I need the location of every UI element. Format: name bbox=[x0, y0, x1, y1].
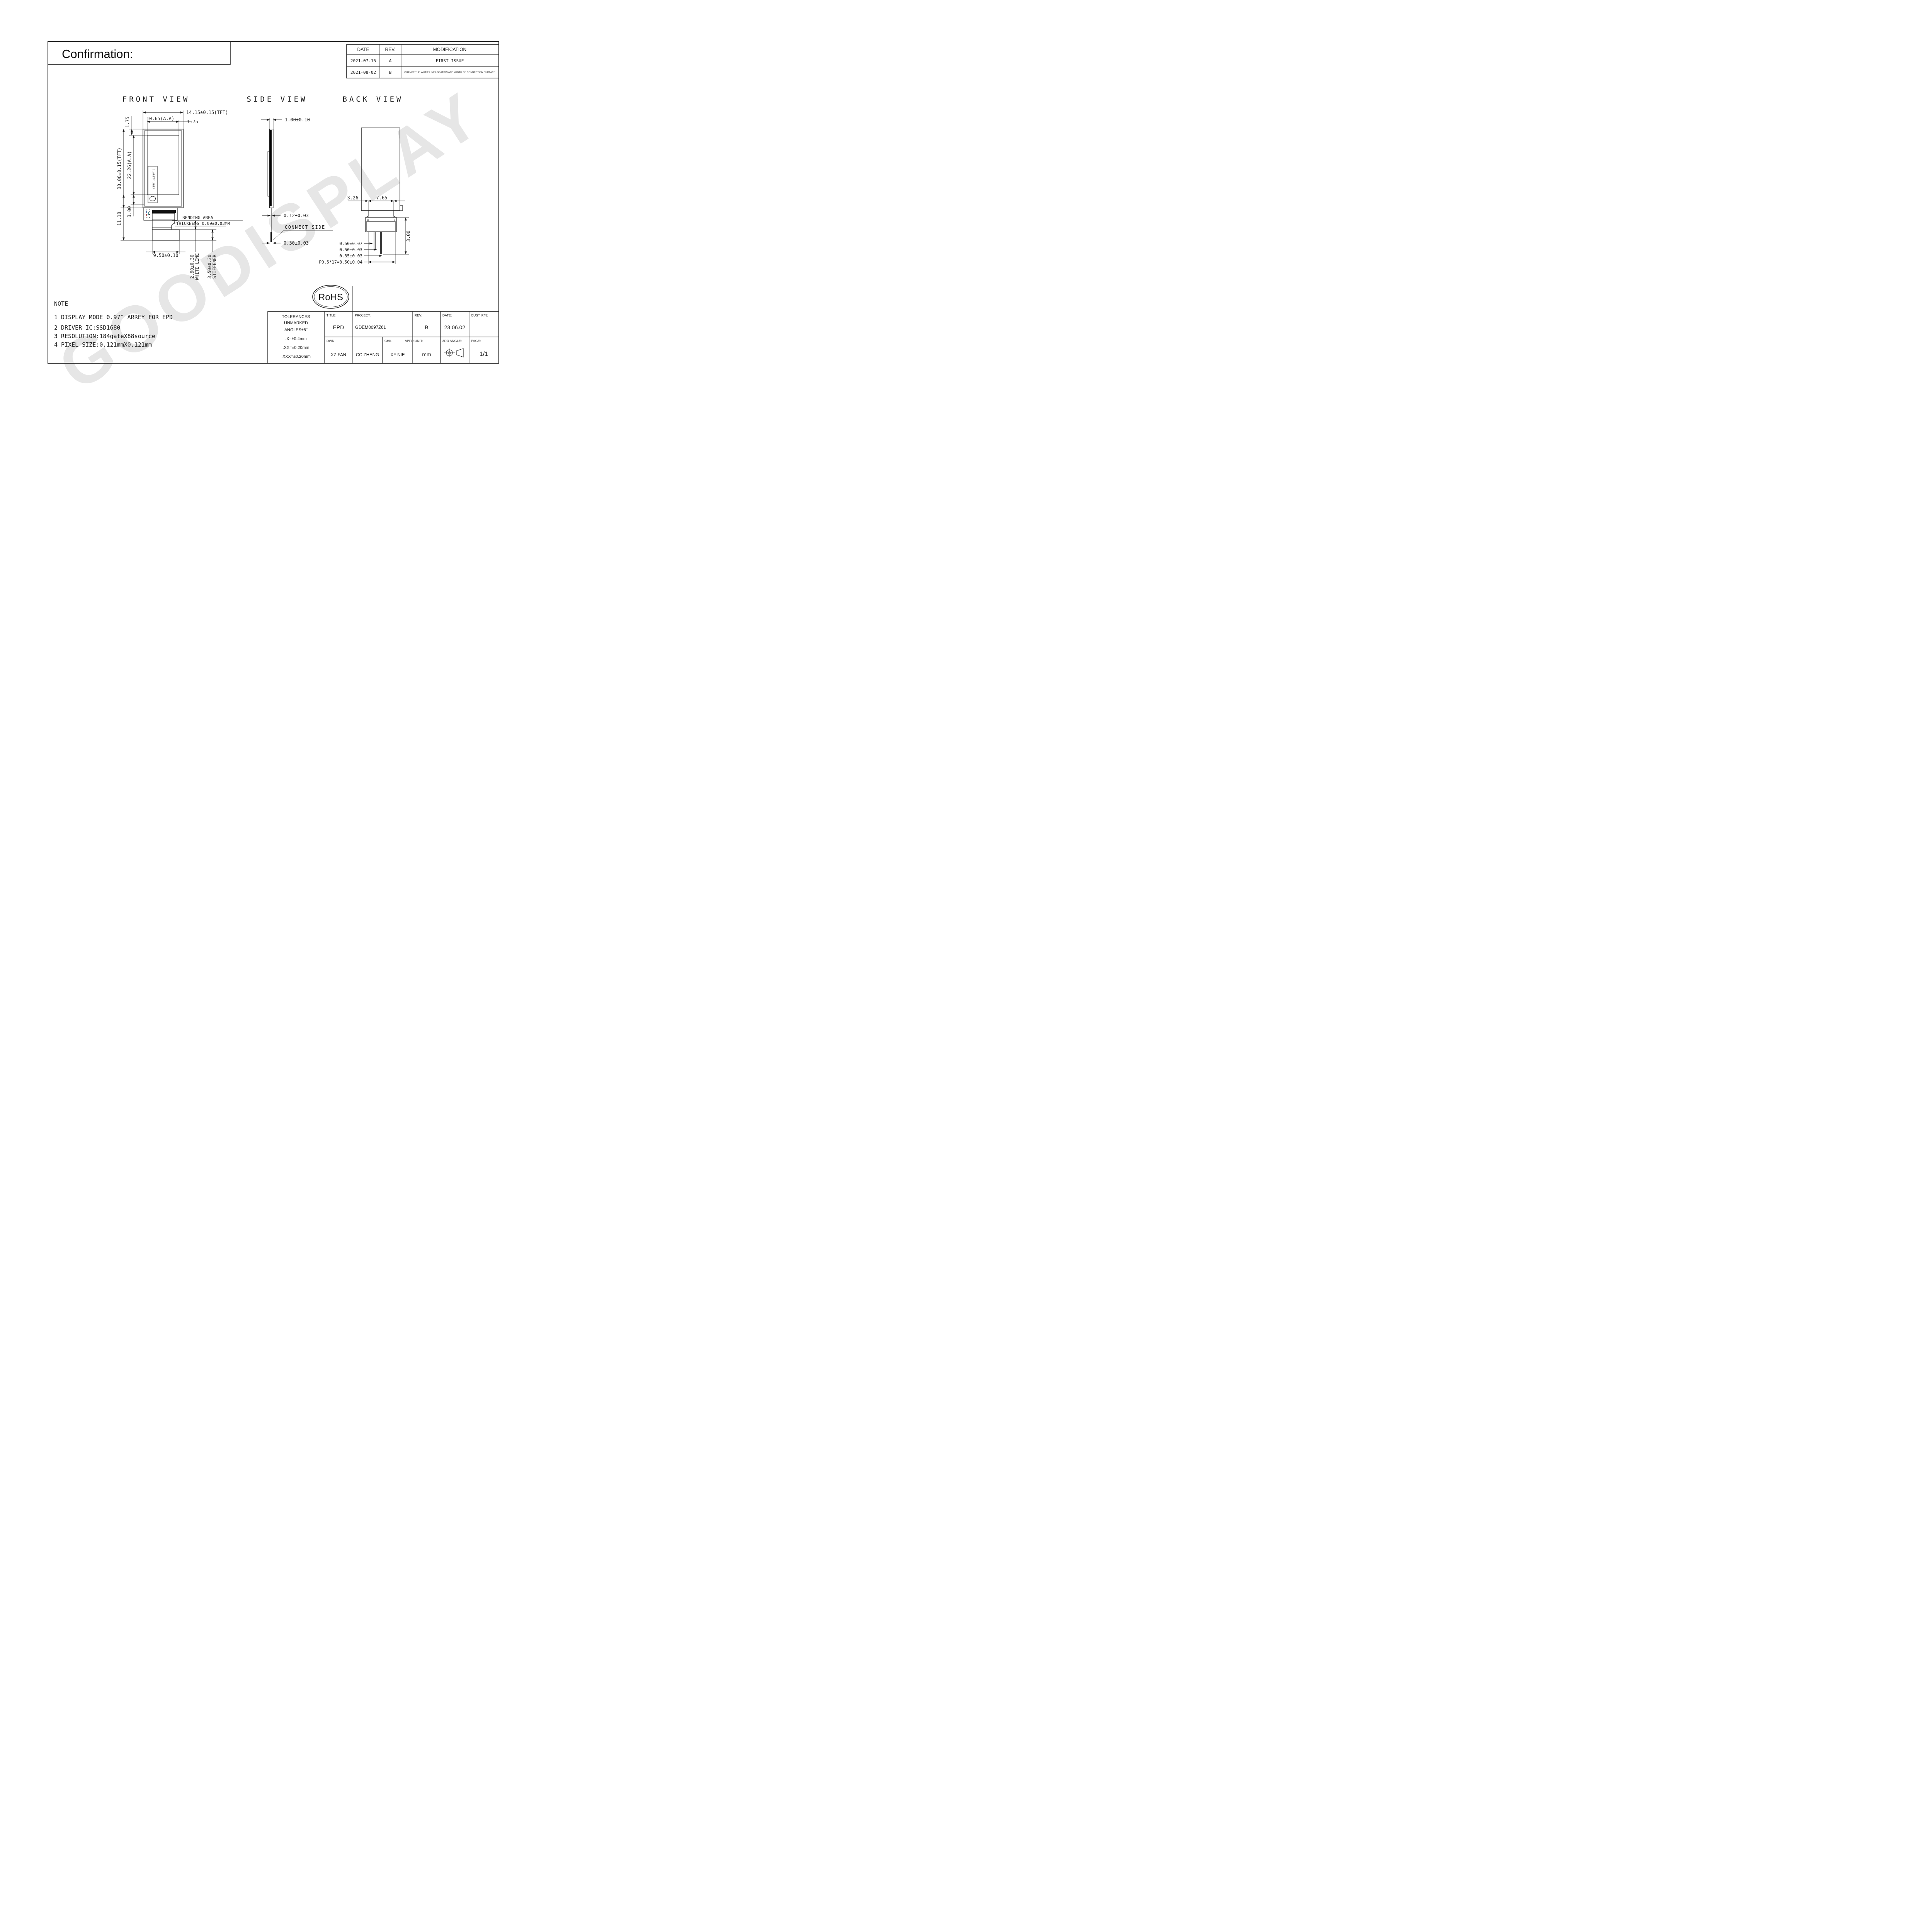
page-label: PAGE: bbox=[471, 339, 481, 343]
note-title: NOTE bbox=[54, 300, 68, 307]
revision-row: 2021-08-02 B CHANGE THE WHTIE LINE LOCAT… bbox=[350, 70, 495, 75]
dim-pin-d1: 0.50±0.07 bbox=[339, 241, 362, 246]
dwn-label: DWN. bbox=[327, 339, 335, 343]
confirmation-header: Confirmation: bbox=[48, 41, 230, 65]
dim-fpc-thickness: 0.12±0.03 bbox=[284, 213, 309, 218]
dim-back-width: 7.65 bbox=[376, 195, 388, 201]
rev-a-rev: A bbox=[389, 58, 392, 63]
revision-table: DATE REV. MODIFICATION 2021-07-15 A FIRS… bbox=[347, 44, 499, 78]
schematic-svg: GOODISPLAY Confirmation: DATE REV. MODIF… bbox=[0, 0, 542, 383]
project-value: GDEM0097Z61 bbox=[355, 325, 386, 330]
appr-value: XF NIE bbox=[390, 353, 405, 357]
title-label: TITLE: bbox=[327, 313, 337, 317]
thickness-label: THICKNESS 0.09±0.03MM bbox=[176, 221, 230, 226]
side-view-title: SIDE VIEW bbox=[247, 95, 308, 104]
drawing-sheet: GOODISPLAY Confirmation: DATE REV. MODIF… bbox=[0, 0, 542, 383]
chk-label: CHK. bbox=[384, 339, 392, 343]
tolerances-cell: TOLERANCES UNMARKED ANGLES±5° .X=±0.4mm … bbox=[281, 315, 311, 359]
dim-back-offset: 3.26 bbox=[347, 195, 359, 201]
date-label: DATE: bbox=[442, 313, 452, 317]
white-line-label: WHITE LINE bbox=[194, 253, 200, 280]
note-item-1: 1 DISPLAY MODE 0.97″ ARREY FOR EPD bbox=[54, 314, 173, 321]
dwn-value: XZ FAN bbox=[331, 353, 346, 357]
page-value: 1/1 bbox=[480, 351, 488, 357]
dim-pin-pitch: P0.5*17=8.50±0.04 bbox=[319, 260, 362, 265]
title-block: TOLERANCES UNMARKED ANGLES±5° .X=±0.4mm … bbox=[268, 311, 499, 363]
confirmation-title: Confirmation: bbox=[62, 47, 133, 61]
dim-pin-d3: 0.35±0.03 bbox=[339, 253, 362, 259]
pin-grid-area bbox=[152, 213, 175, 220]
rev-a-date: 2021-07-15 bbox=[350, 58, 376, 63]
dim-stiffener-width: 9.50±0.10 bbox=[153, 253, 178, 258]
stiffener-block bbox=[152, 230, 179, 240]
dim-width-aa: 10.65(A.A) bbox=[146, 116, 174, 121]
bending-area-label: BENDING AREA bbox=[182, 215, 213, 220]
dim-pin-d2: 0.50±0.03 bbox=[339, 247, 362, 252]
dim-connector-thickness: 0.30±0.03 bbox=[284, 240, 309, 246]
dim-white-line: 2.90±0.30 bbox=[189, 255, 195, 279]
third-angle-projection-icon bbox=[444, 349, 463, 357]
rev-b-date: 2021-08-02 bbox=[350, 70, 376, 75]
pin-number-first: 18 bbox=[367, 219, 369, 221]
clarity-area-label: CLARITY AREA bbox=[152, 169, 155, 189]
dim-stiffener: 3.50±0.30 bbox=[207, 255, 212, 279]
project-label: PROJECT: bbox=[355, 313, 371, 317]
dim-side-thickness: 1.00±0.10 bbox=[285, 117, 310, 122]
connect-side-label: CONNECT SIDE bbox=[285, 225, 325, 230]
tol-line-3: ANGLES±5° bbox=[284, 328, 308, 332]
appr-label: APPR. bbox=[405, 339, 415, 343]
note-item-4: 4 PIXEL SIZE:0.121mmX0.121mm bbox=[54, 341, 152, 348]
tol-line-4: .X=±0.4mm bbox=[285, 337, 306, 341]
rohs-logo: RoHS bbox=[313, 285, 353, 311]
connect-side-contact bbox=[270, 232, 272, 242]
revision-row: 2021-07-15 A FIRST ISSUE bbox=[350, 58, 464, 63]
dim-height-aa: 22.26(A.A) bbox=[127, 151, 132, 179]
rev-a-modification: FIRST ISSUE bbox=[436, 58, 464, 63]
dim-margin-right: 1.75 bbox=[187, 119, 198, 124]
rev-b-modification: CHANGE THE WHTIE LINE LOCATION AND WIDTH… bbox=[404, 71, 495, 74]
unit-value: mm bbox=[422, 351, 431, 357]
dim-height-tft: 30.00±0.15(TFT) bbox=[117, 148, 122, 189]
pin-number-last: 1 bbox=[394, 219, 395, 221]
rev-b-rev: B bbox=[389, 70, 392, 75]
dim-width-tft: 14.15±0.15(TFT) bbox=[186, 110, 228, 115]
rohs-label: RoHS bbox=[318, 292, 343, 303]
stiffener-label: STIFFENER bbox=[212, 255, 217, 279]
dim-tail-height: 11.18 bbox=[117, 212, 122, 226]
cust-pn-label: CUST. P/N: bbox=[471, 313, 488, 317]
date-value: 23.06.02 bbox=[444, 324, 466, 330]
tol-line-1: TOLERANCES bbox=[282, 315, 310, 319]
tol-line-5: .XX=±0.20mm bbox=[283, 345, 310, 350]
rev-col-date: DATE bbox=[357, 47, 369, 52]
rev-col-modification: MODIFICATION bbox=[433, 47, 466, 52]
acf-bar bbox=[152, 210, 176, 213]
dim-bend-height: 3.00 bbox=[127, 206, 132, 218]
chk-value: CC ZHENG bbox=[356, 353, 379, 357]
tol-line-2: UNMARKED bbox=[284, 321, 308, 325]
front-view-title: FRONT VIEW bbox=[122, 95, 190, 104]
rev-label: REV: bbox=[415, 313, 422, 317]
note-item-3: 3 RESOLUTION:184gateX88source bbox=[54, 333, 155, 340]
note-item-2: 2 DRIVER IC:SSD1680 bbox=[54, 324, 121, 331]
dim-margin-top: 1.75 bbox=[125, 117, 130, 128]
connector-pins-comb bbox=[367, 221, 395, 231]
back-view-title: BACK VIEW bbox=[343, 95, 403, 104]
tol-line-6: .XXX=±0.20mm bbox=[281, 354, 311, 359]
rev-col-rev: REV. bbox=[385, 47, 396, 52]
dim-connector-height: 3.00 bbox=[406, 231, 411, 242]
title-value: EPD bbox=[333, 324, 344, 330]
unit-label: UNIT: bbox=[415, 339, 423, 343]
third-angle-label: 3RD ANGLE: bbox=[442, 339, 462, 343]
rev-value: B bbox=[425, 324, 428, 330]
